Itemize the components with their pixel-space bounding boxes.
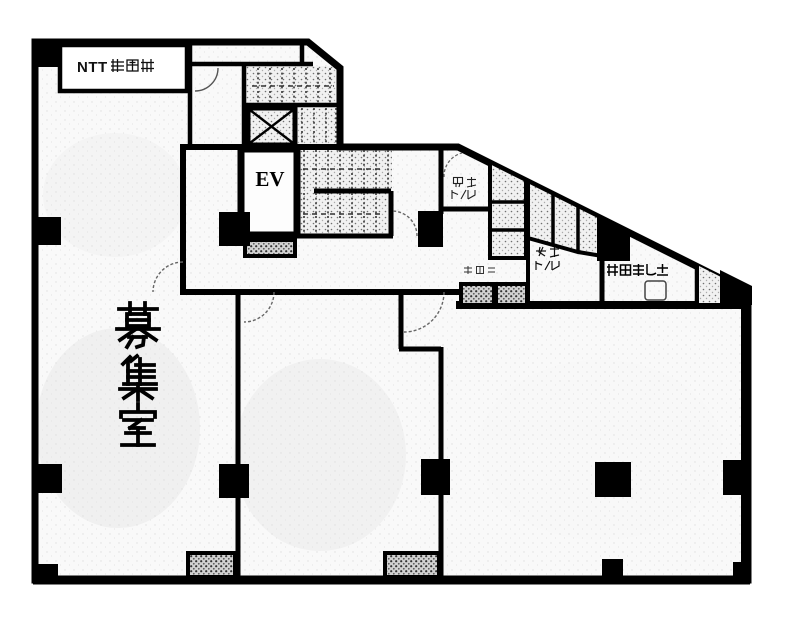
- svg-text:EV: EV: [255, 167, 284, 191]
- svg-text:NTT: NTT: [77, 59, 108, 76]
